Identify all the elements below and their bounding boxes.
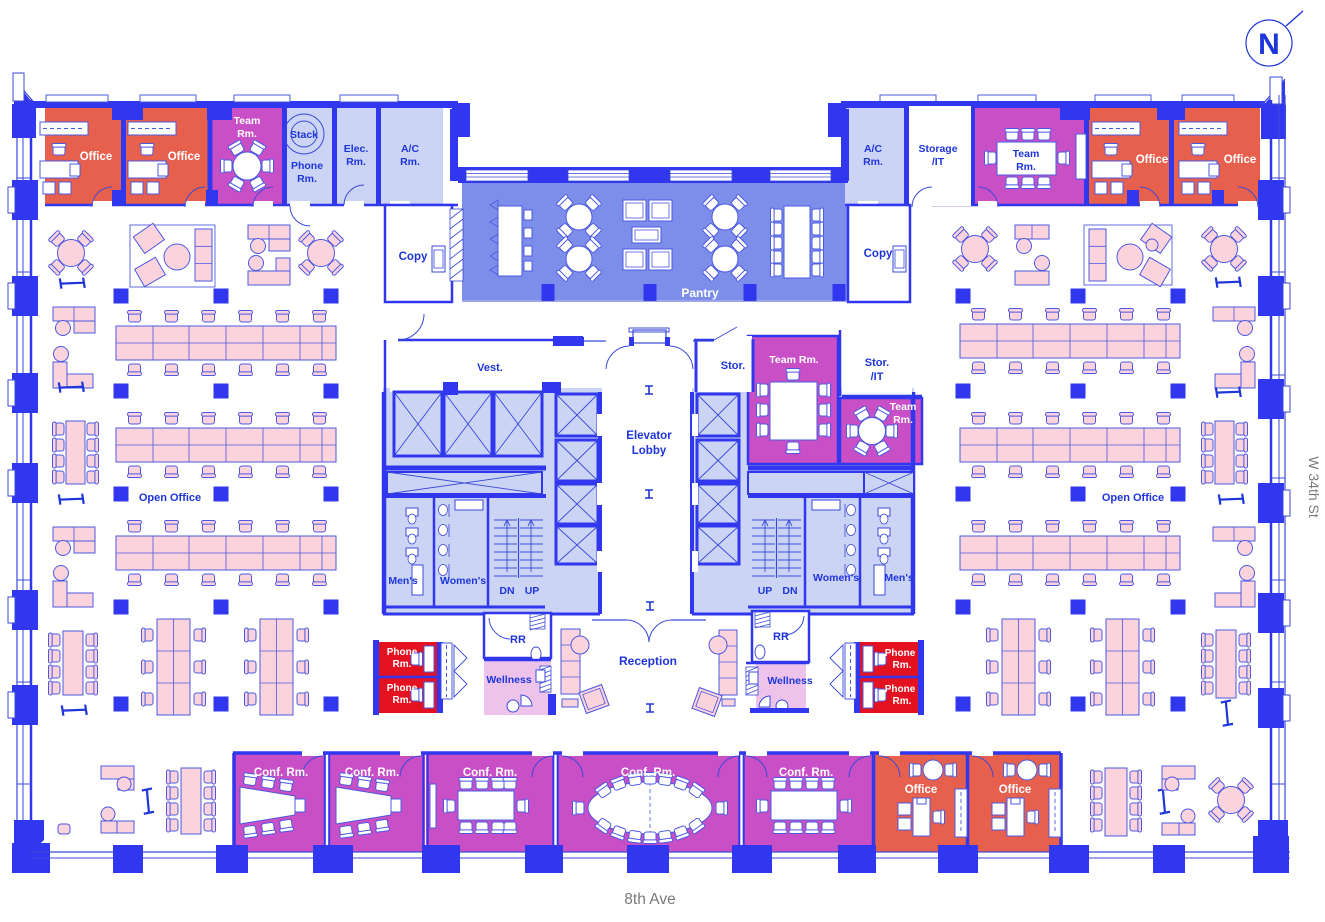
svg-text:/IT: /IT (871, 371, 884, 383)
svg-text:A/C: A/C (401, 143, 420, 155)
svg-text:Team: Team (234, 115, 261, 127)
svg-text:Phone: Phone (387, 647, 418, 658)
svg-text:DN: DN (499, 585, 514, 597)
svg-text:8th Ave: 8th Ave (624, 891, 675, 908)
svg-text:Open Office: Open Office (1102, 492, 1164, 504)
svg-text:Pantry: Pantry (681, 286, 719, 300)
svg-text:Rm.: Rm. (297, 173, 317, 185)
svg-text:Conf. Rm.: Conf. Rm. (463, 767, 517, 779)
svg-text:Open Office: Open Office (139, 492, 201, 504)
svg-text:Rm.: Rm. (893, 660, 912, 671)
svg-text:Elec.: Elec. (344, 143, 369, 155)
svg-text:Lobby: Lobby (632, 445, 667, 457)
svg-text:Office: Office (1136, 154, 1169, 166)
svg-text:Phone: Phone (885, 648, 916, 659)
svg-text:Office: Office (999, 784, 1032, 796)
svg-text:A/C: A/C (864, 143, 883, 155)
svg-text:Rm.: Rm. (393, 695, 412, 706)
svg-text:Team: Team (890, 401, 917, 413)
svg-text:Wellness: Wellness (767, 675, 812, 687)
svg-text:Rm.: Rm. (400, 156, 420, 168)
svg-text:Rm.: Rm. (346, 156, 366, 168)
svg-text:Reception: Reception (619, 654, 677, 668)
svg-text:Copy: Copy (399, 251, 428, 263)
svg-text:Rm.: Rm. (237, 128, 257, 140)
svg-text:Stor.: Stor. (865, 357, 889, 369)
svg-text:Phone: Phone (387, 683, 418, 694)
svg-text:Rm.: Rm. (863, 156, 883, 168)
svg-text:Wellness: Wellness (486, 674, 531, 686)
svg-text:Team Rm.: Team Rm. (769, 354, 818, 366)
svg-text:Women's: Women's (440, 575, 486, 587)
svg-text:Men's: Men's (884, 572, 913, 584)
svg-text:Stor.: Stor. (721, 360, 745, 372)
svg-text:Rm.: Rm. (1016, 161, 1036, 173)
svg-text:/IT: /IT (932, 156, 945, 168)
svg-text:Office: Office (80, 151, 113, 163)
svg-text:Phone: Phone (885, 684, 916, 695)
svg-text:Team: Team (1013, 148, 1040, 160)
svg-text:Elevator: Elevator (626, 430, 672, 442)
svg-text:Office: Office (1224, 154, 1257, 166)
svg-text:W 34th St: W 34th St (1306, 456, 1322, 518)
svg-text:Rm.: Rm. (893, 696, 912, 707)
svg-text:UP: UP (758, 585, 773, 597)
svg-text:Conf. Rm.: Conf. Rm. (621, 767, 675, 779)
svg-text:Office: Office (905, 784, 938, 796)
svg-text:Storage: Storage (918, 143, 957, 155)
svg-text:DN: DN (782, 585, 797, 597)
svg-text:N: N (1258, 28, 1280, 61)
svg-text:Vest.: Vest. (477, 362, 503, 374)
svg-text:RR: RR (773, 631, 789, 643)
svg-text:Women's: Women's (813, 572, 859, 584)
svg-text:Conf. Rm.: Conf. Rm. (345, 767, 399, 779)
svg-text:RR: RR (510, 634, 526, 646)
svg-text:Phone: Phone (291, 160, 323, 172)
svg-text:Stack: Stack (290, 129, 318, 141)
svg-text:Rm.: Rm. (393, 659, 412, 670)
svg-text:Men's: Men's (388, 575, 417, 587)
svg-text:Copy: Copy (864, 248, 893, 260)
svg-text:Conf. Rm.: Conf. Rm. (254, 767, 308, 779)
svg-text:Office: Office (168, 151, 201, 163)
svg-text:Conf. Rm.: Conf. Rm. (779, 767, 833, 779)
svg-text:UP: UP (525, 585, 540, 597)
